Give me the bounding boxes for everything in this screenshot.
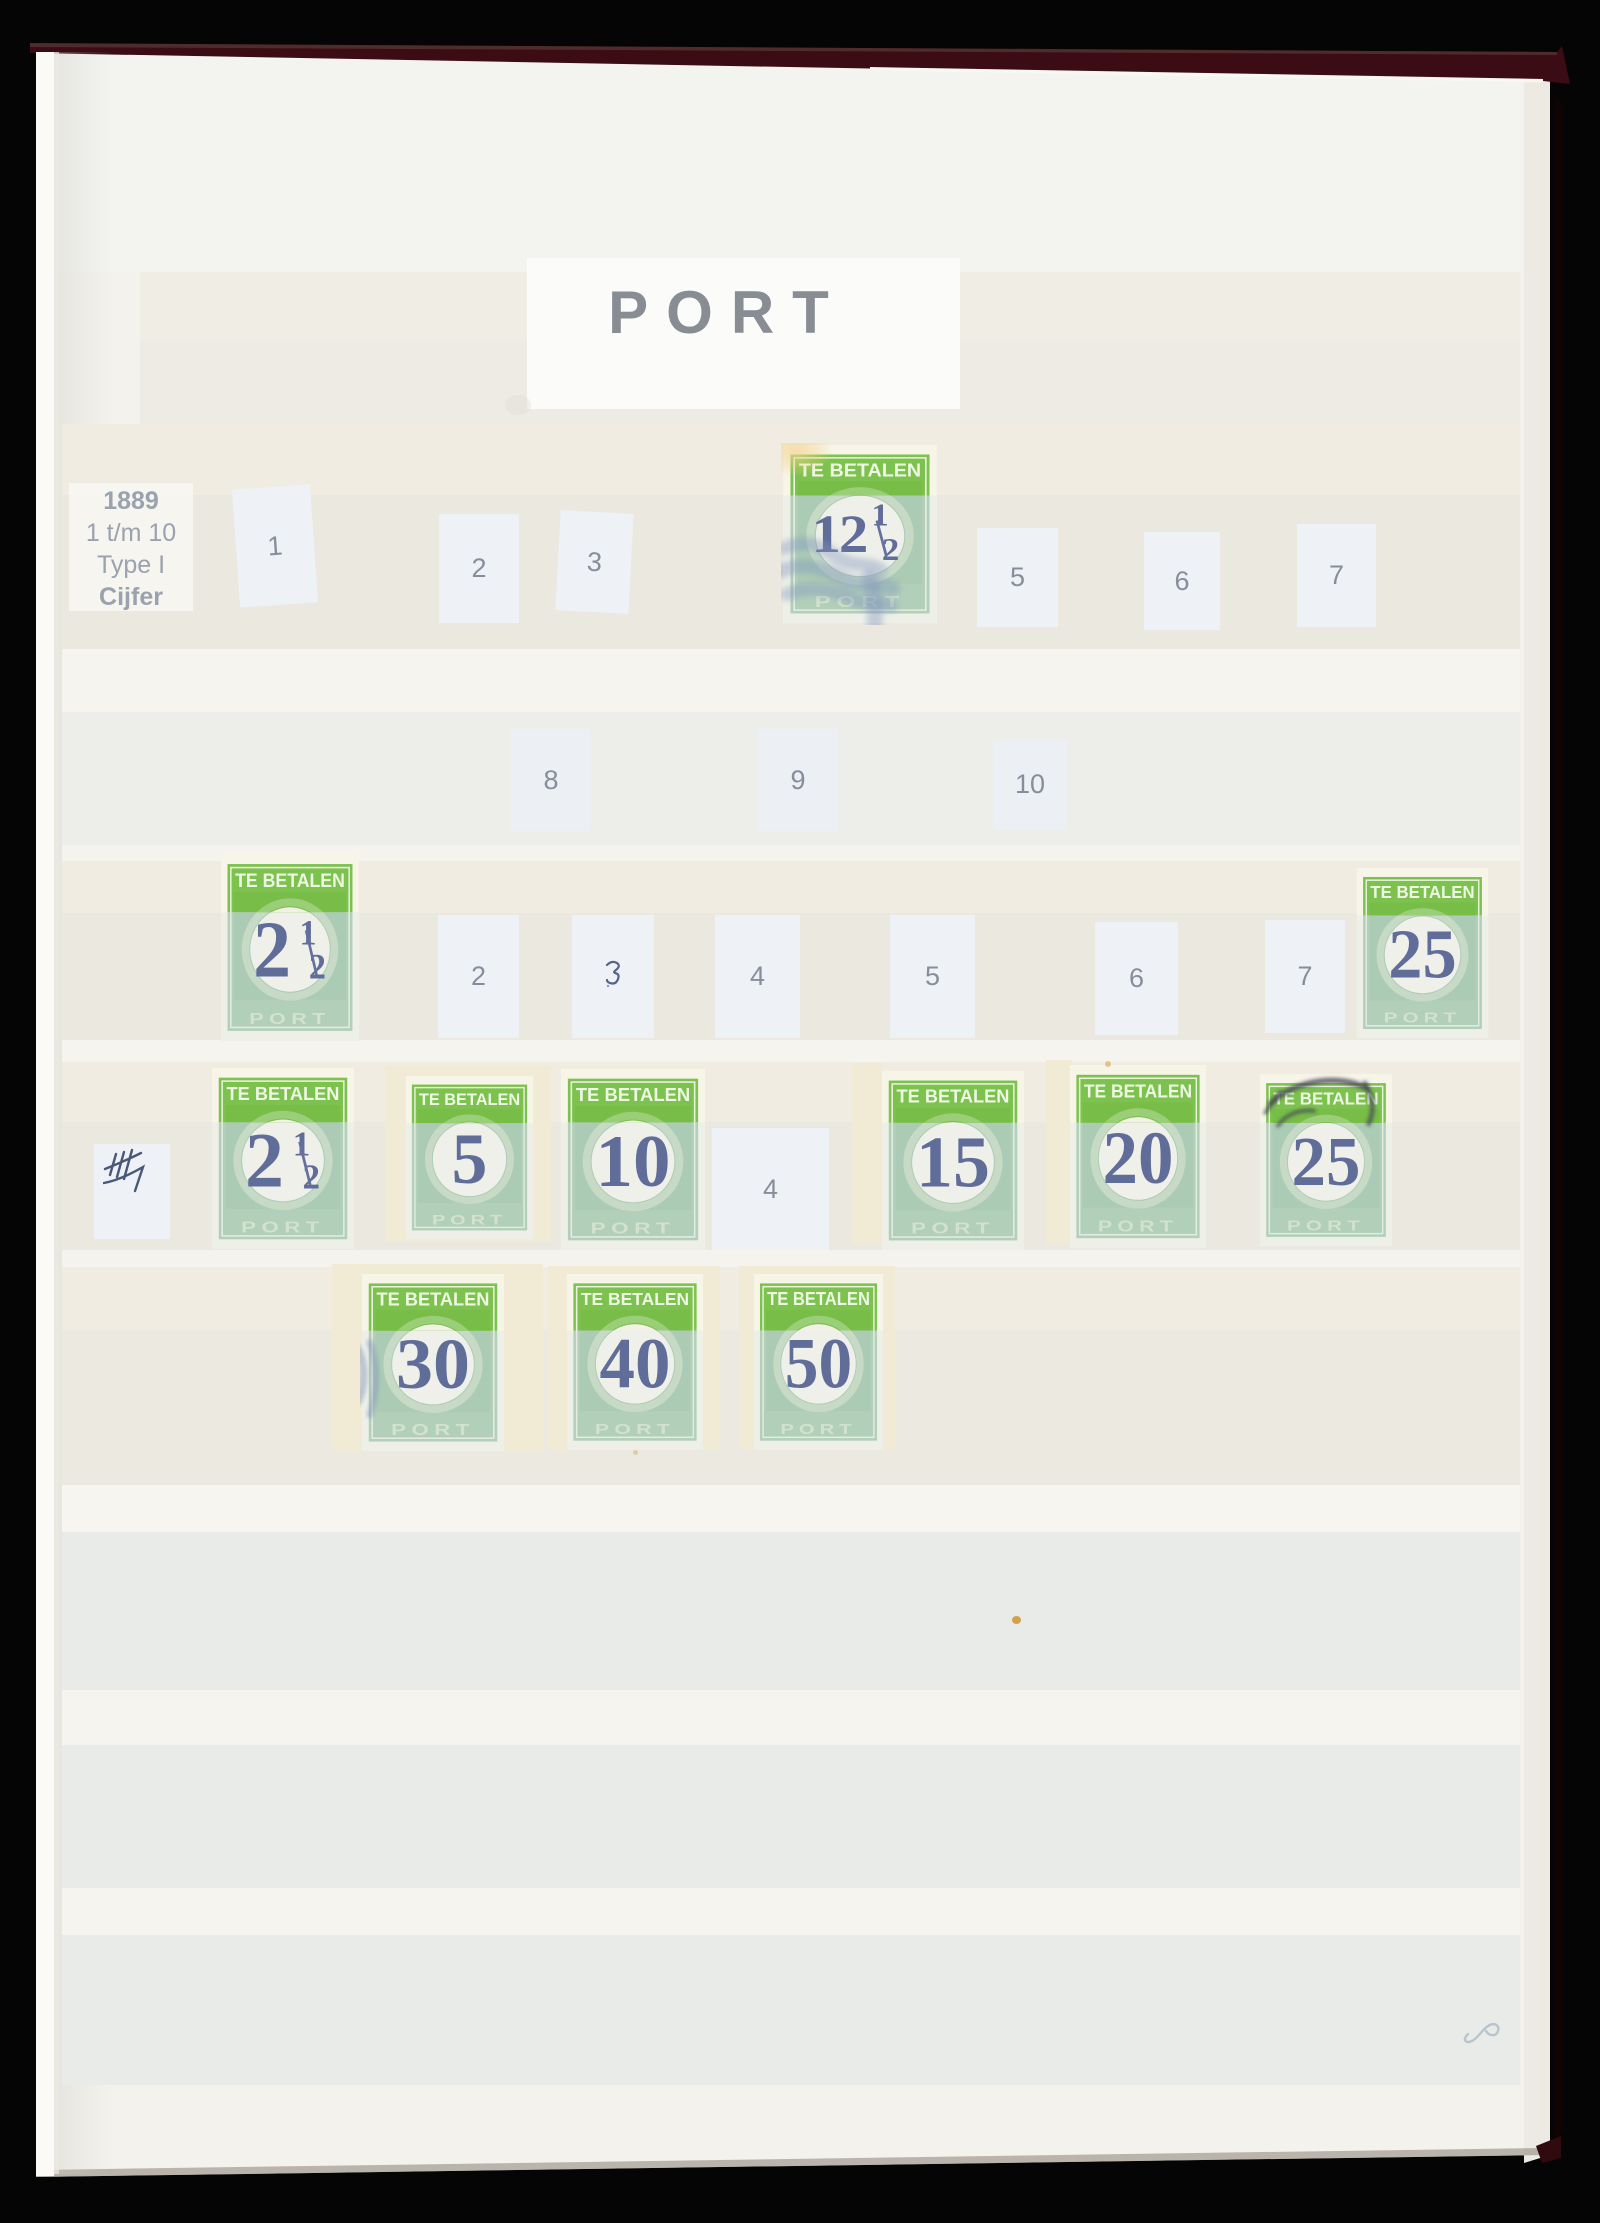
svg-text:40: 40 [600, 1324, 671, 1404]
svg-text:50: 50 [785, 1325, 852, 1405]
svg-text:2: 2 [245, 1118, 284, 1204]
svg-text:5: 5 [452, 1119, 488, 1199]
svg-text:2: 2 [253, 905, 291, 995]
svg-text:10: 10 [596, 1121, 671, 1202]
svg-text:25: 25 [1292, 1123, 1361, 1201]
svg-text:15: 15 [916, 1121, 990, 1203]
svg-text:20: 20 [1103, 1116, 1174, 1199]
svg-text:30: 30 [396, 1324, 470, 1404]
svg-text:25: 25 [1388, 916, 1456, 993]
